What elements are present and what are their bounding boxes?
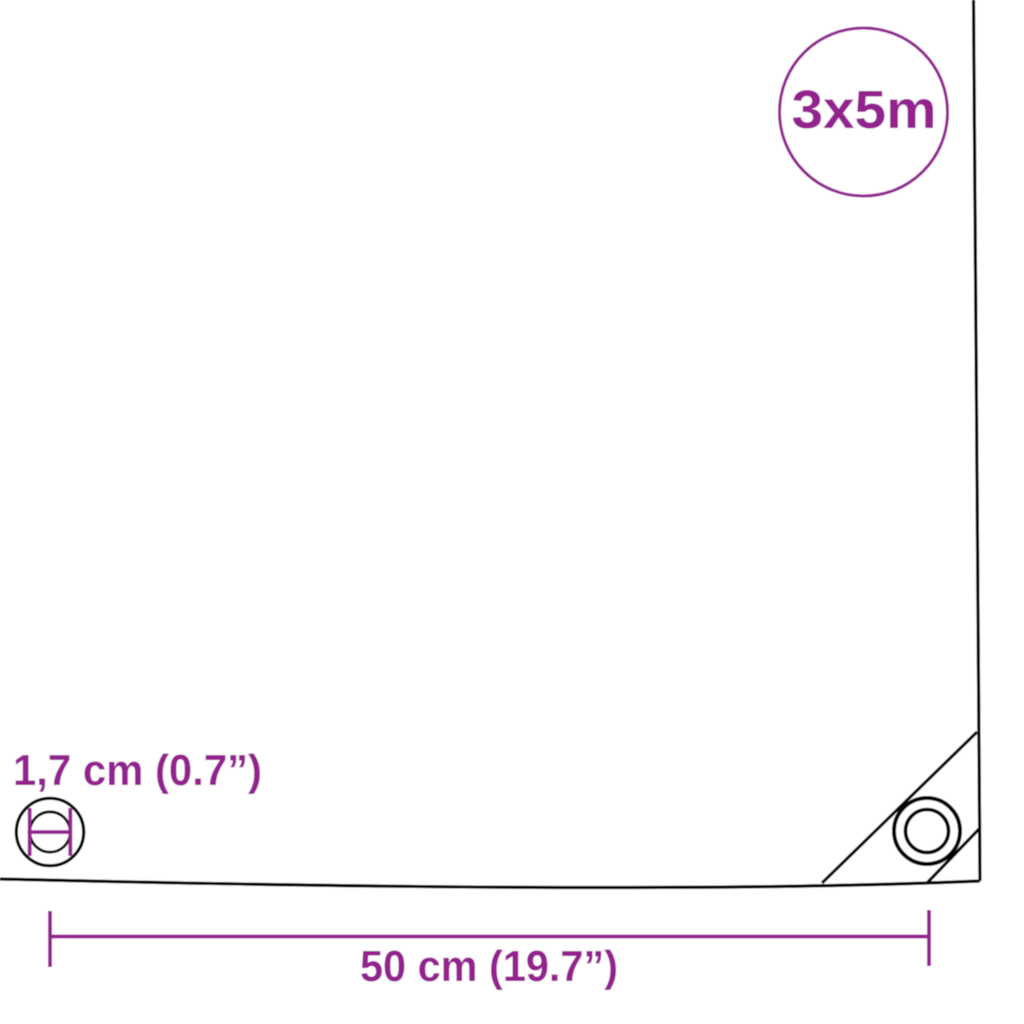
svg-text:1,7 cm (0.7”): 1,7 cm (0.7”) xyxy=(13,746,262,795)
svg-text:50 cm (19.7”): 50 cm (19.7”) xyxy=(360,942,618,991)
svg-text:3x5m: 3x5m xyxy=(792,80,937,140)
